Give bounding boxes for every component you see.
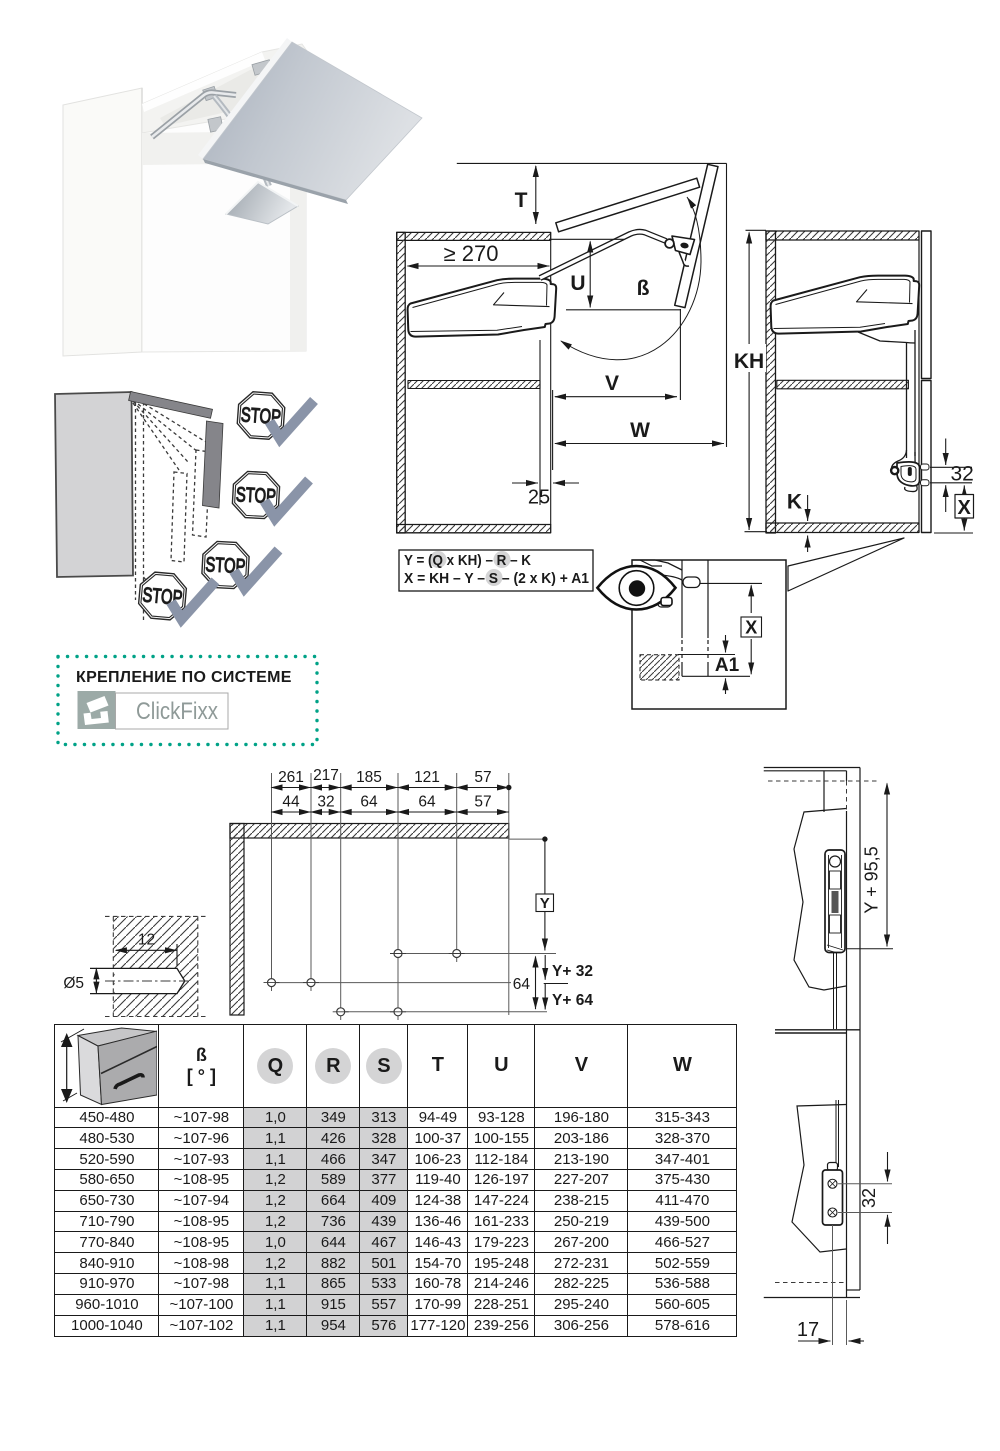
svg-text:32: 32 (951, 463, 974, 486)
svg-text:64: 64 (418, 794, 436, 811)
svg-text:Y+ 32: Y+ 32 (552, 963, 593, 980)
svg-text:Y = (Q x KH) – R – K: Y = (Q x KH) – R – K (404, 552, 531, 569)
svg-text:X: X (958, 497, 972, 519)
svg-text:T: T (515, 189, 528, 212)
svg-text:A1: A1 (715, 655, 740, 676)
svg-text:Ø5: Ø5 (63, 975, 84, 992)
svg-text:ClickFixx: ClickFixx (136, 698, 218, 725)
svg-text:W: W (630, 419, 650, 442)
svg-text:≥ 270: ≥ 270 (444, 241, 499, 266)
svg-text:32: 32 (317, 794, 334, 811)
svg-text:185: 185 (356, 769, 382, 786)
svg-text:261: 261 (278, 769, 304, 786)
svg-text:Y: Y (540, 895, 550, 912)
svg-text:17: 17 (797, 1319, 819, 1341)
svg-text:X: X (745, 618, 757, 638)
svg-text:121: 121 (414, 769, 440, 786)
svg-text:KH: KH (734, 350, 764, 373)
svg-text:КРЕПЛЕНИЕ ПО СИСТЕМЕ: КРЕПЛЕНИЕ ПО СИСТЕМЕ (76, 669, 292, 686)
svg-text:ß: ß (637, 277, 650, 300)
svg-text:U: U (570, 272, 585, 295)
svg-text:217: 217 (313, 767, 339, 784)
svg-text:32: 32 (859, 1188, 879, 1208)
svg-text:25: 25 (528, 487, 550, 509)
svg-text:57: 57 (474, 794, 491, 811)
svg-text:V: V (605, 372, 619, 395)
svg-text:12: 12 (138, 932, 155, 949)
svg-text:57: 57 (474, 769, 491, 786)
svg-text:64: 64 (513, 976, 531, 993)
svg-text:44: 44 (282, 794, 300, 811)
svg-text:X = KH – Y – S – (2 x K) + A1: X = KH – Y – S – (2 x K) + A1 (404, 570, 589, 587)
svg-text:Y + 95,5: Y + 95,5 (862, 846, 882, 913)
svg-text:K: K (787, 491, 802, 514)
svg-text:Y+ 64: Y+ 64 (552, 992, 593, 1009)
svg-text:64: 64 (360, 794, 378, 811)
